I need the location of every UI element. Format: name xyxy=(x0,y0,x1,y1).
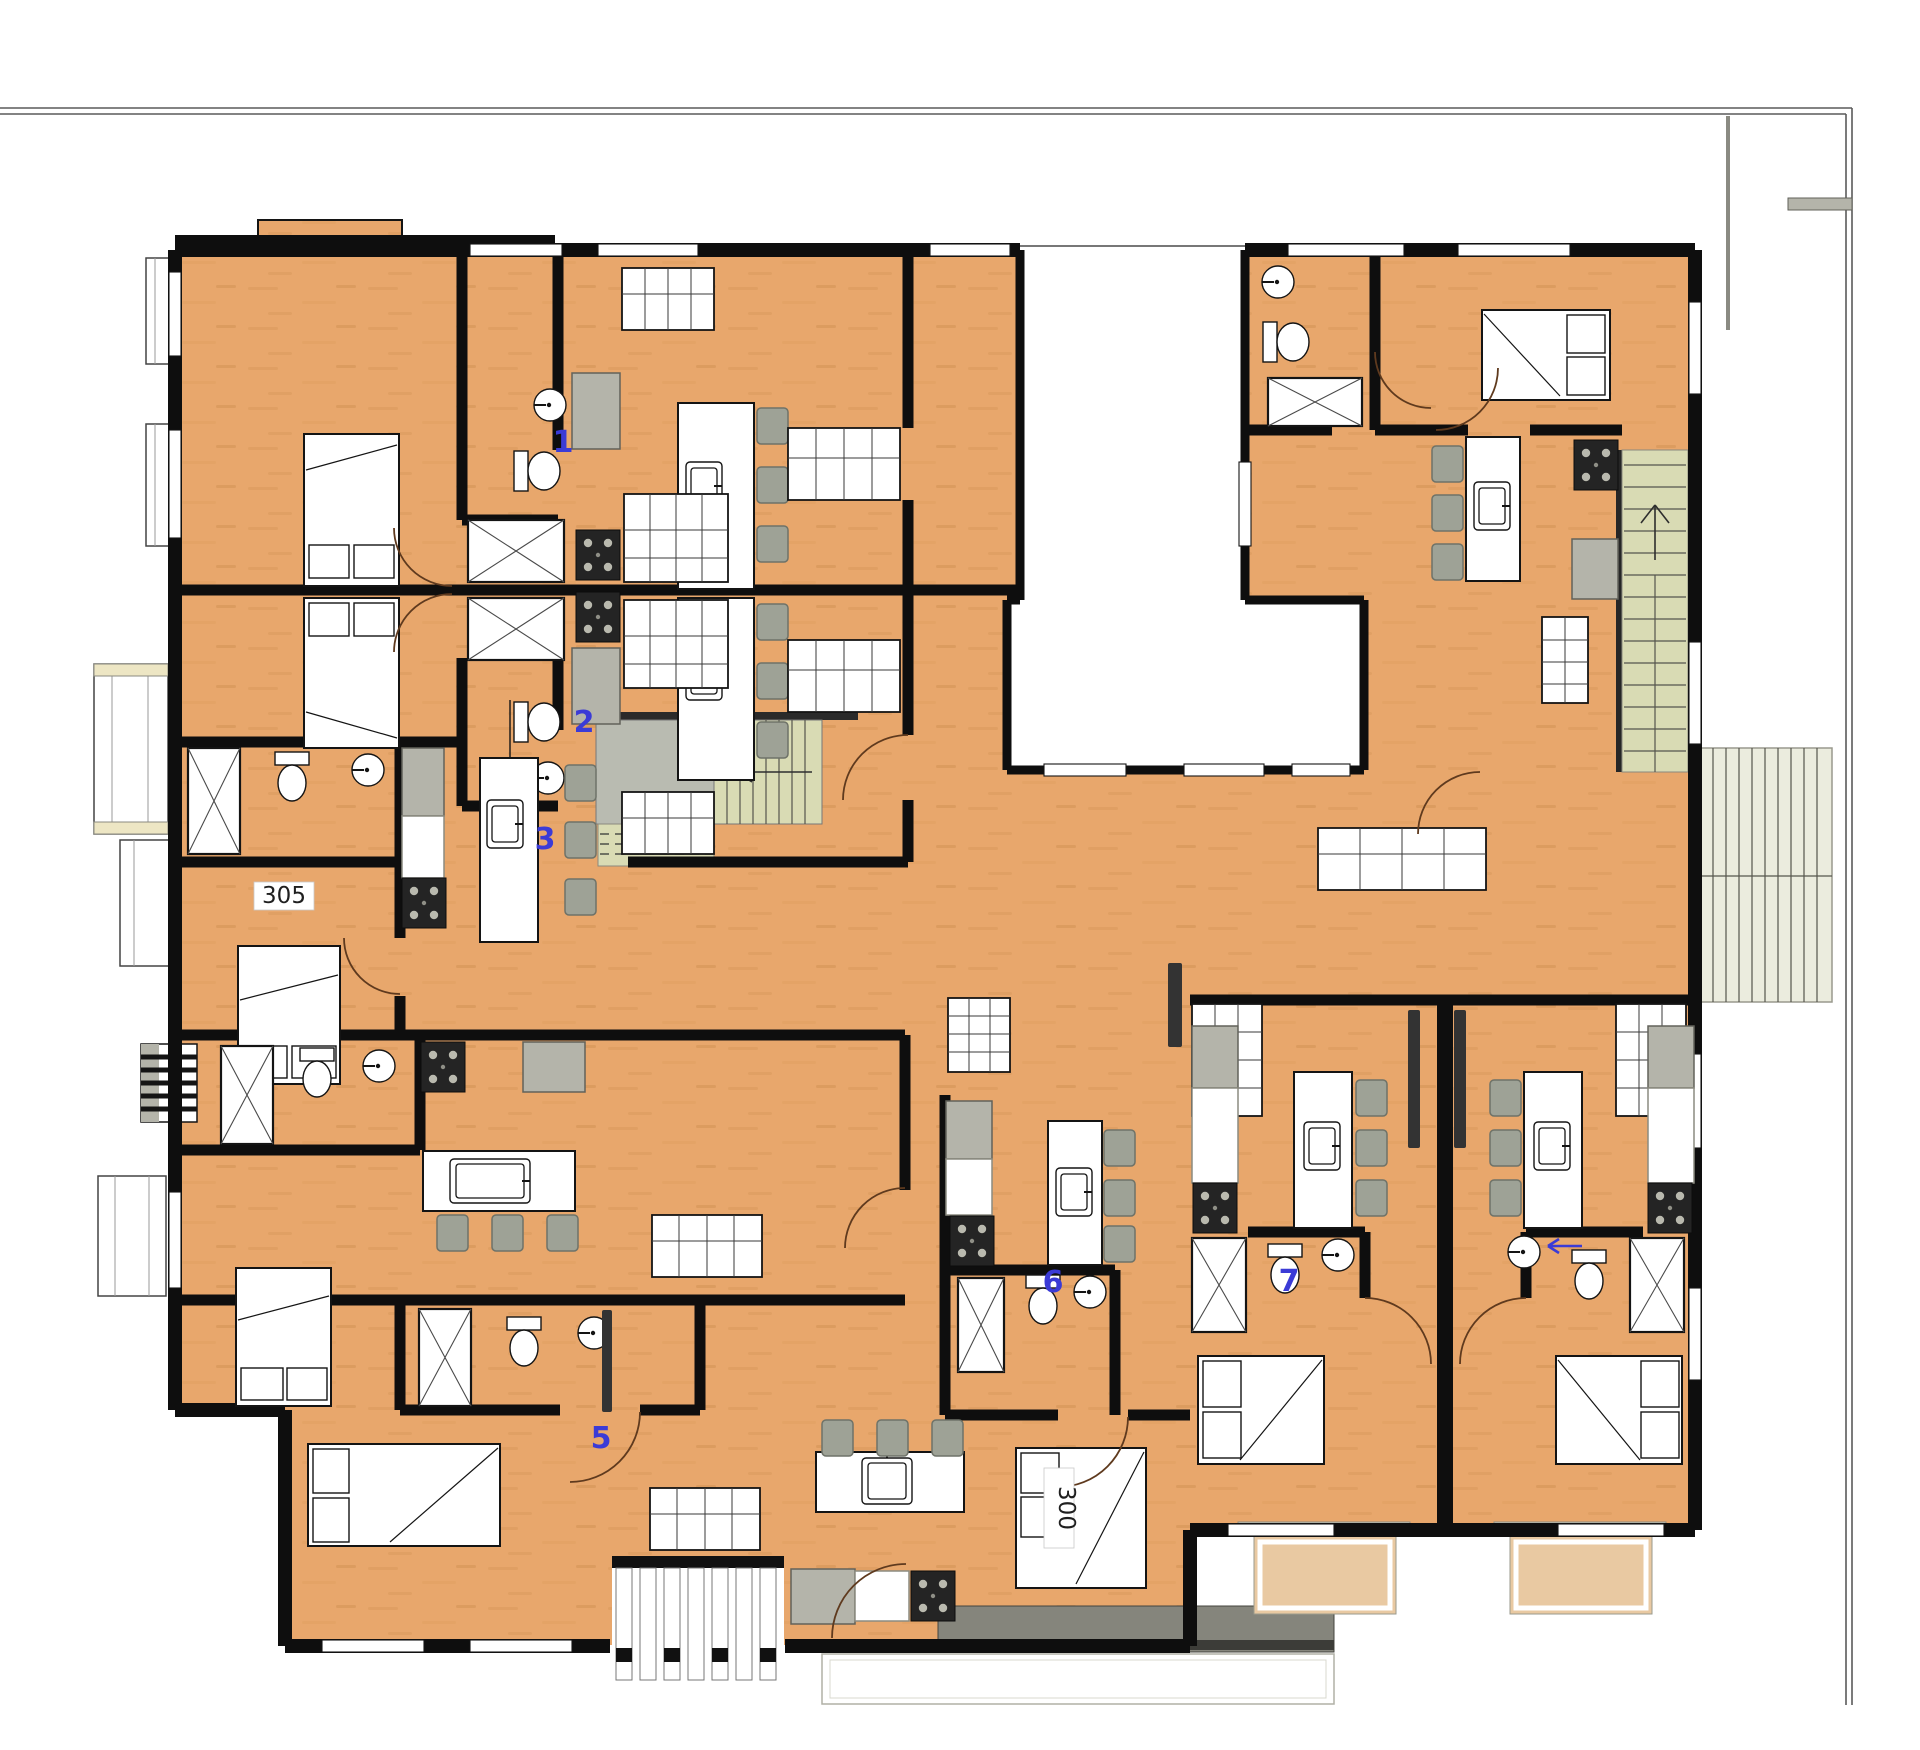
bar-stool xyxy=(1432,495,1463,531)
stove xyxy=(402,878,446,928)
bar-stool xyxy=(757,408,788,444)
island-sink xyxy=(487,800,523,848)
island-sink xyxy=(1304,1122,1340,1170)
floor-plan: 1 2 3 5 6 7 305 300 xyxy=(0,0,1920,1750)
sofa xyxy=(1318,828,1486,890)
bed xyxy=(1556,1356,1682,1464)
counter xyxy=(946,1159,992,1215)
sofa xyxy=(622,792,714,854)
round-sink xyxy=(534,389,566,421)
room-number-305: 305 xyxy=(262,883,306,909)
unit-marker-5: 5 xyxy=(591,1421,612,1456)
bar-stool xyxy=(565,822,596,858)
boundary-post xyxy=(1788,198,1852,210)
washer-box xyxy=(468,520,564,582)
bar-stool xyxy=(1490,1080,1521,1116)
shower xyxy=(419,1309,471,1406)
bottom-balcony xyxy=(822,1654,1334,1704)
round-sink xyxy=(1322,1239,1354,1271)
bar-stool xyxy=(1490,1130,1521,1166)
bar-stool xyxy=(1104,1226,1135,1262)
bar-stool xyxy=(757,663,788,699)
tv xyxy=(1408,1010,1420,1148)
bar-stool xyxy=(565,879,596,915)
counter xyxy=(523,1042,585,1092)
refrigerator xyxy=(1648,1026,1694,1088)
round-sink xyxy=(363,1050,395,1082)
stove xyxy=(950,1216,994,1266)
toilet xyxy=(514,702,560,742)
shower xyxy=(221,1046,273,1144)
island-sink xyxy=(1474,482,1510,530)
kitchen-island xyxy=(1294,1072,1352,1228)
round-sink xyxy=(1262,266,1294,298)
stove xyxy=(1648,1183,1692,1233)
refrigerator xyxy=(946,1101,992,1159)
bar-stool xyxy=(877,1420,908,1456)
stove xyxy=(576,530,620,580)
refrigerator xyxy=(1572,539,1618,599)
bed xyxy=(304,598,399,748)
unit-marker-3: 3 xyxy=(535,822,556,857)
room-number-300: 300 xyxy=(1053,1486,1079,1530)
kitchen-island xyxy=(816,1450,964,1512)
bed xyxy=(304,434,399,586)
sofa xyxy=(650,1488,760,1550)
round-sink xyxy=(352,754,384,786)
bar-stool xyxy=(822,1420,853,1456)
stove xyxy=(576,592,620,642)
bar-stool xyxy=(757,722,788,758)
unit-stair-top-right xyxy=(1616,450,1688,772)
bottom-left-deck xyxy=(612,1556,784,1680)
bar-stool xyxy=(1432,446,1463,482)
washer-box xyxy=(468,598,564,660)
stove xyxy=(911,1571,955,1621)
stove xyxy=(421,1042,465,1092)
floor-plan-page: 1 2 3 5 6 7 305 300 xyxy=(0,0,1920,1750)
shower xyxy=(1268,378,1362,426)
shower xyxy=(958,1278,1004,1372)
toilet xyxy=(1572,1250,1606,1299)
bar-stool xyxy=(932,1420,963,1456)
shower xyxy=(1630,1238,1684,1332)
shower xyxy=(1192,1238,1246,1332)
tv xyxy=(602,1310,612,1412)
sofa xyxy=(622,268,714,330)
refrigerator xyxy=(1192,1026,1238,1088)
unit-marker-2: 2 xyxy=(574,705,595,740)
toilet xyxy=(275,752,309,801)
kitchen-island xyxy=(1466,437,1520,581)
bar-stool xyxy=(565,765,596,801)
bar-stool xyxy=(757,604,788,640)
island-sink xyxy=(1056,1168,1092,1216)
room-300 xyxy=(1016,1448,1146,1588)
toilet xyxy=(1263,322,1309,362)
kitchen-island xyxy=(1524,1072,1582,1228)
bar-stool xyxy=(1432,544,1463,580)
bar-stool xyxy=(757,467,788,503)
bed xyxy=(308,1444,500,1546)
bar-stool xyxy=(1490,1180,1521,1216)
stove xyxy=(1193,1183,1237,1233)
kitchen-island xyxy=(1048,1121,1102,1265)
round-sink xyxy=(1508,1236,1540,1268)
bar-stool xyxy=(1356,1080,1387,1116)
stove xyxy=(1574,440,1618,490)
bar-stool xyxy=(757,526,788,562)
tv xyxy=(1454,1010,1466,1148)
sofa xyxy=(788,640,900,712)
bar-stool xyxy=(547,1215,578,1251)
bed xyxy=(236,1268,331,1406)
bed xyxy=(1482,310,1610,400)
tv xyxy=(1168,963,1182,1047)
toilet xyxy=(300,1048,334,1097)
counter xyxy=(402,816,444,878)
counter xyxy=(572,373,620,449)
sofa xyxy=(1542,617,1588,703)
bar-stool xyxy=(1356,1130,1387,1166)
sofa xyxy=(624,600,728,688)
unit-marker-1: 1 xyxy=(553,425,574,460)
counter xyxy=(1648,1088,1694,1183)
bar-stool xyxy=(1104,1130,1135,1166)
bar-stool xyxy=(492,1215,523,1251)
sofa xyxy=(788,428,900,500)
right-deck xyxy=(1700,748,1832,1002)
shower xyxy=(188,748,240,854)
bar-stool xyxy=(437,1215,468,1251)
bed xyxy=(1198,1356,1324,1464)
shelving xyxy=(948,998,1010,1072)
kitchen-island xyxy=(423,1151,575,1211)
sofa xyxy=(624,494,728,582)
toilet xyxy=(507,1317,541,1366)
unit-marker-6: 6 xyxy=(1043,1265,1064,1300)
unit-marker-7: 7 xyxy=(1279,1264,1300,1299)
bar-stool xyxy=(1104,1180,1135,1216)
island-sink xyxy=(1534,1122,1570,1170)
round-sink xyxy=(1074,1276,1106,1308)
bar-stool xyxy=(1356,1180,1387,1216)
counter xyxy=(1192,1088,1238,1183)
sofa xyxy=(652,1215,762,1277)
refrigerator xyxy=(402,748,444,816)
